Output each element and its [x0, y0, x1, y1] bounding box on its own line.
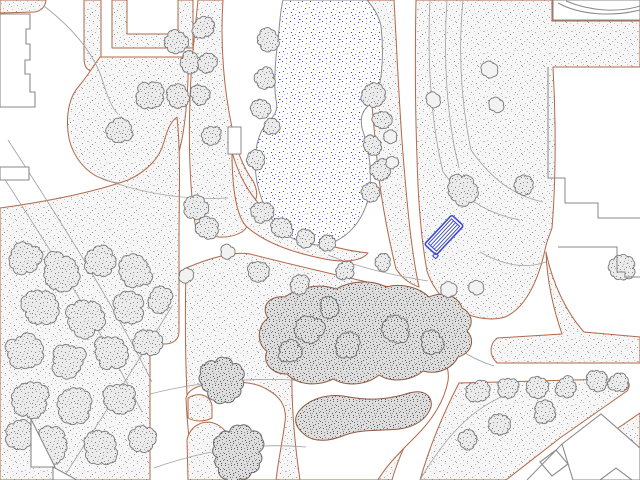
tree-symbol [336, 261, 354, 280]
tree-symbol [133, 330, 163, 356]
tree-symbol [201, 126, 221, 145]
tree-symbol [489, 414, 511, 435]
tree-symbol [534, 400, 555, 424]
tree-symbol [441, 282, 457, 298]
tree-symbol [254, 67, 275, 90]
tree-symbol [113, 291, 144, 324]
tree-symbol [608, 254, 635, 280]
tree-symbol [136, 82, 164, 109]
planting-island-b [188, 395, 212, 421]
tree-symbol [213, 425, 264, 480]
cad-viewport[interactable] [0, 0, 640, 480]
shrub-mass-center [259, 282, 471, 384]
tree-symbol [361, 182, 380, 202]
tree-symbol [84, 430, 118, 465]
building-topleft [0, 14, 35, 107]
tree-symbol [514, 175, 533, 196]
building-step-outline [548, 67, 640, 218]
tree-symbol [257, 27, 279, 52]
planting-area-topleft-band [0, 0, 46, 13]
tree-symbol [246, 150, 264, 170]
site-plan-drawing [0, 0, 640, 480]
tree-symbol [375, 253, 390, 271]
tree-symbol [128, 426, 156, 453]
tree-symbol [94, 337, 128, 370]
layer-root [0, 0, 640, 480]
tree-symbol [319, 235, 335, 251]
planting-area-right [415, 0, 640, 319]
tree-symbol [384, 130, 397, 144]
tree-symbol [250, 99, 271, 119]
pond-steps [228, 127, 241, 154]
tree-symbol [5, 419, 33, 449]
building-left-small [0, 167, 29, 180]
building-topright [553, 0, 640, 20]
tree-symbol [555, 376, 576, 398]
tree-symbol [607, 373, 628, 391]
